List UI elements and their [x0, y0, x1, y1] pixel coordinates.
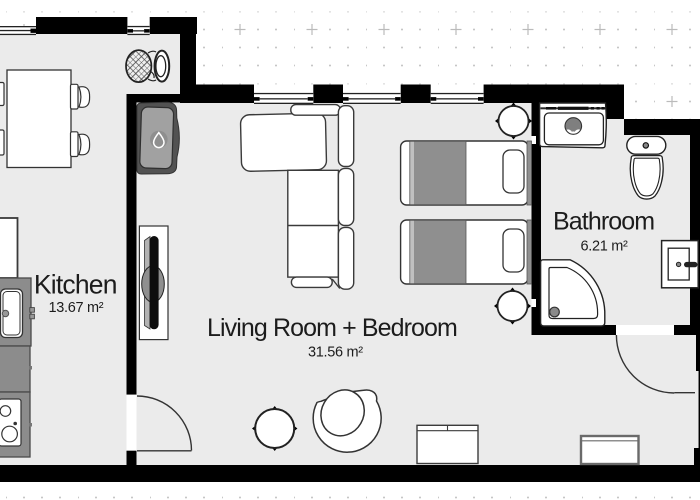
svg-text:6.21 m²: 6.21 m² — [580, 239, 628, 255]
svg-text:Kitchen: Kitchen — [34, 270, 117, 300]
svg-text:31.56 m²: 31.56 m² — [308, 345, 363, 361]
svg-text:Living Room + Bedroom: Living Room + Bedroom — [207, 314, 457, 342]
svg-text:Bathroom: Bathroom — [553, 207, 654, 235]
svg-text:13.67 m²: 13.67 m² — [48, 300, 103, 316]
